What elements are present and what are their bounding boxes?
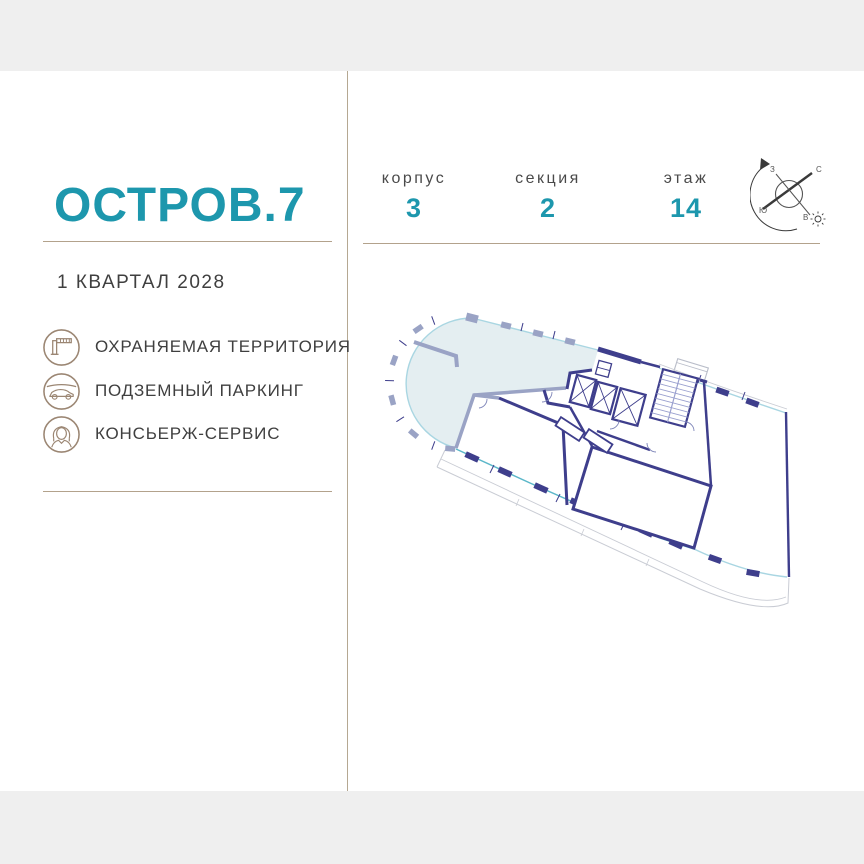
compass-arrowhead	[760, 158, 770, 170]
header-sektsiya: секция 2	[488, 170, 608, 224]
concierge-icon	[42, 415, 81, 454]
header-divider	[363, 243, 820, 244]
completion-date: 1 КВАРТАЛ 2028	[57, 272, 226, 294]
compass-east: В	[803, 213, 808, 222]
amenity-underground-parking: ПОДЗЕМНЫЙ ПАРКИНГ	[42, 371, 342, 411]
logo-underline	[43, 241, 332, 242]
etazh-label: этаж	[626, 170, 746, 188]
header-korpus: корпус 3	[354, 170, 474, 224]
compass-south: Ю	[759, 206, 767, 215]
amenity-label: КОНСЬЕРЖ-СЕРВИС	[95, 424, 280, 444]
amenity-label: ОХРАНЯЕМАЯ ТЕРРИТОРИЯ	[95, 337, 351, 357]
elevator-shaft-3	[612, 388, 645, 426]
korpus-label: корпус	[354, 170, 474, 188]
brand-logo: ОСТРОВ.7	[54, 178, 306, 233]
amenity-concierge: КОНСЬЕРЖ-СЕРВИС	[42, 414, 342, 454]
sektsiya-value: 2	[488, 193, 608, 224]
amenity-guarded-territory: ОХРАНЯЕМАЯ ТЕРРИТОРИЯ	[42, 327, 342, 367]
header-etazh: этаж 14	[626, 170, 746, 224]
vent-shaft	[595, 360, 611, 377]
barrier-icon	[42, 328, 81, 367]
korpus-value: 3	[354, 193, 474, 224]
amenity-label: ПОДЗЕМНЫЙ ПАРКИНГ	[95, 381, 304, 401]
sektsiya-label: секция	[488, 170, 608, 188]
vestibule-box-1	[556, 417, 585, 441]
top-gray-band	[0, 0, 864, 71]
bottom-gray-band	[0, 791, 864, 864]
car-icon	[42, 372, 81, 411]
compass-west: З	[770, 165, 775, 174]
compass-icon: С З Ю В	[750, 152, 830, 240]
etazh-value: 14	[626, 193, 746, 224]
vertical-divider	[347, 71, 348, 791]
staircase	[650, 369, 698, 427]
sun-icon	[811, 212, 826, 227]
floorplan[interactable]	[383, 296, 807, 622]
left-divider	[43, 491, 332, 492]
compass-north: С	[816, 165, 822, 174]
